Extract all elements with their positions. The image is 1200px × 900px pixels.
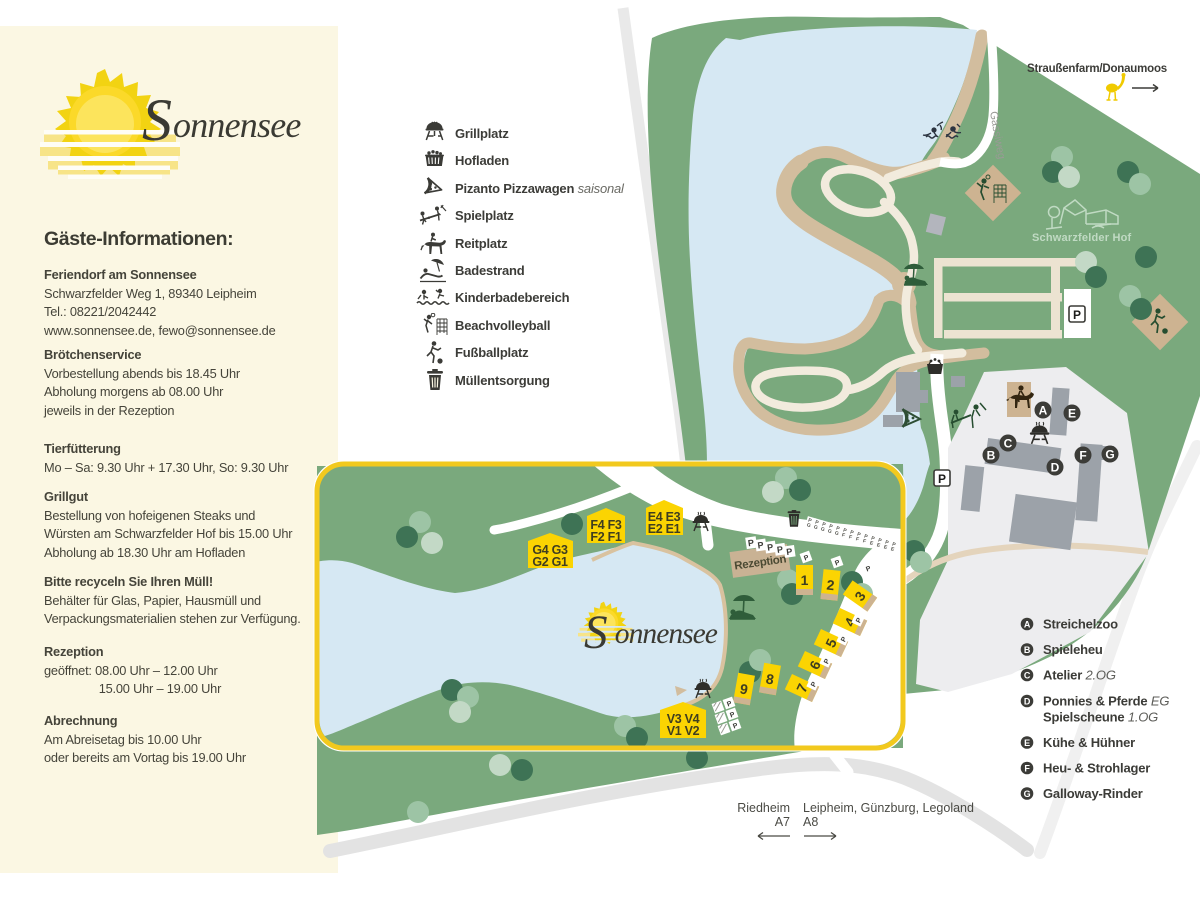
svg-text:Atelier 2.OG: Atelier 2.OG <box>1043 667 1116 682</box>
svg-text:Galloway-Rinder: Galloway-Rinder <box>1043 786 1143 801</box>
svg-text:A: A <box>1039 404 1048 418</box>
svg-text:E2 E1: E2 E1 <box>648 522 681 536</box>
svg-text:C: C <box>1024 671 1031 681</box>
svg-text:B: B <box>1024 645 1031 655</box>
svg-text:V1 V2: V1 V2 <box>667 724 700 738</box>
svg-text:onnensee: onnensee <box>615 618 718 650</box>
svg-text:G2 G1: G2 G1 <box>532 555 568 569</box>
svg-text:F: F <box>1024 764 1030 774</box>
svg-text:G: G <box>1105 448 1114 462</box>
svg-text:Schwarzfelder Hof: Schwarzfelder Hof <box>1032 232 1132 244</box>
svg-text:Streichelzoo: Streichelzoo <box>1043 616 1118 631</box>
svg-text:Kühe & Hühner: Kühe & Hühner <box>1043 735 1135 750</box>
svg-text:Spieleheu: Spieleheu <box>1043 642 1103 657</box>
svg-text:Straußenfarm/Donaumoos: Straußenfarm/Donaumoos <box>1027 63 1167 75</box>
svg-text:F2 F1: F2 F1 <box>590 530 621 544</box>
svg-text:S: S <box>584 607 608 659</box>
svg-text:B: B <box>987 449 996 463</box>
svg-text:Ponnies & Pferde EG: Ponnies & Pferde EG <box>1043 693 1169 708</box>
svg-text:E: E <box>1024 738 1030 748</box>
svg-text:E: E <box>1068 407 1076 421</box>
svg-text:D: D <box>1024 697 1031 707</box>
svg-text:A: A <box>1024 620 1031 630</box>
svg-text:Spielscheune 1.OG: Spielscheune 1.OG <box>1043 709 1158 724</box>
svg-text:F: F <box>1079 449 1086 463</box>
svg-text:G: G <box>1024 789 1031 799</box>
svg-text:C: C <box>1004 437 1013 451</box>
svg-text:D: D <box>1051 461 1060 475</box>
svg-text:Heu- & Strohlager: Heu- & Strohlager <box>1043 760 1150 775</box>
svg-text:1: 1 <box>801 572 809 588</box>
